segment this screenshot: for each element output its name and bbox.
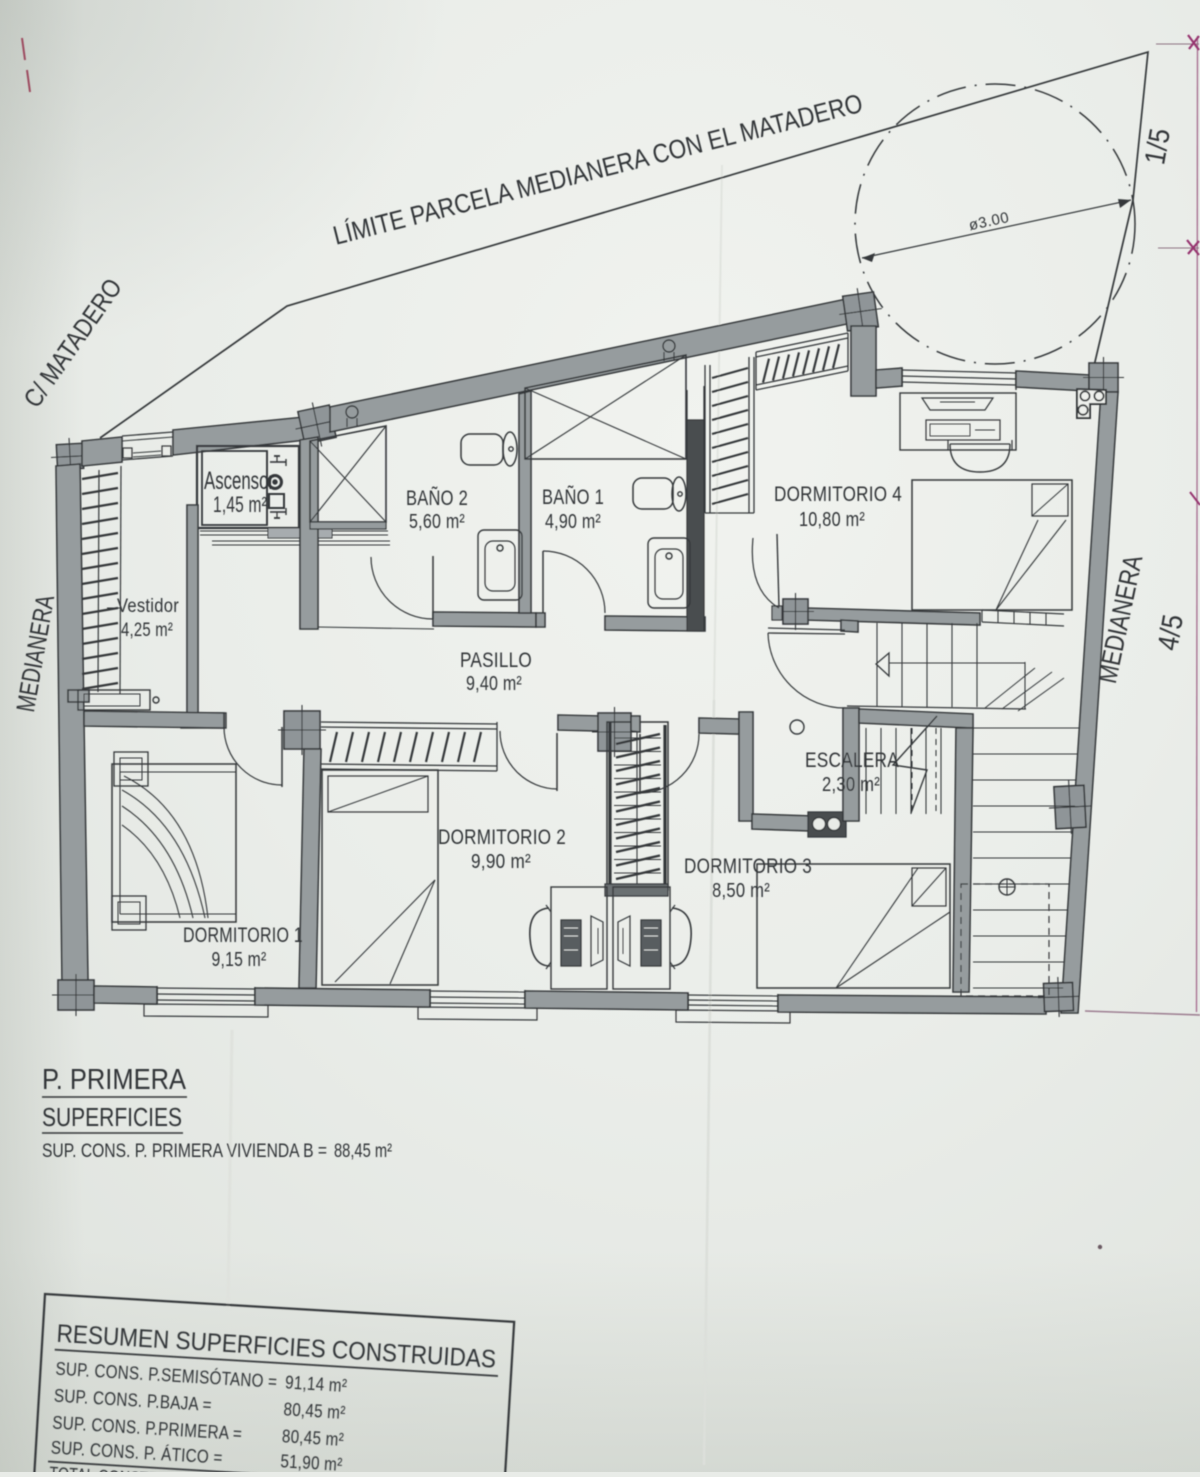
svg-text:DORMITORIO 2: DORMITORIO 2 [438,826,566,849]
svg-text:9,15 m²: 9,15 m² [212,949,267,971]
svg-text:88,45 m²: 88,45 m² [334,1141,392,1162]
svg-text:BAÑO 1: BAÑO 1 [542,485,604,509]
svg-text:P. PRIMERA: P. PRIMERA [42,1064,187,1096]
svg-text:5,60 m²: 5,60 m² [409,511,465,533]
svg-text:80,45 m²: 80,45 m² [283,1398,346,1423]
svg-text:1,45 m²: 1,45 m² [213,492,267,517]
svg-text:10,80 m²: 10,80 m² [799,509,865,531]
svg-text:8,50 m²: 8,50 m² [712,880,770,902]
svg-text:DORMITORIO 4: DORMITORIO 4 [774,483,902,506]
svg-text:BAÑO 2: BAÑO 2 [406,486,468,510]
svg-text:80,45 m²: 80,45 m² [281,1425,344,1450]
svg-text:ESCALERA: ESCALERA [805,749,899,772]
svg-text:Ascensor: Ascensor [204,467,274,495]
svg-text:Vestidor: Vestidor [117,596,179,617]
svg-text:DORMITORIO 1: DORMITORIO 1 [183,924,303,947]
svg-text:51,90 m²: 51,90 m² [280,1450,343,1472]
svg-text:1/5: 1/5 [1139,126,1177,167]
svg-text:PASILLO: PASILLO [460,649,532,672]
svg-text:SUP. CONS. P. PRIMERA VIVIENDA: SUP. CONS. P. PRIMERA VIVIENDA B = [42,1141,327,1162]
svg-text:9,90 m²: 9,90 m² [471,851,531,873]
svg-text:9,40 m²: 9,40 m² [466,673,522,695]
svg-text:4,90 m²: 4,90 m² [545,511,601,533]
svg-text:DORMITORIO 3: DORMITORIO 3 [684,855,812,878]
svg-text:SUPERFICIES: SUPERFICIES [42,1102,182,1132]
svg-text:2,30 m²: 2,30 m² [822,774,880,796]
svg-text:4/5: 4/5 [1152,612,1190,653]
svg-text:91,14 m²: 91,14 m² [285,1371,348,1396]
svg-text:4,25 m²: 4,25 m² [121,620,173,641]
